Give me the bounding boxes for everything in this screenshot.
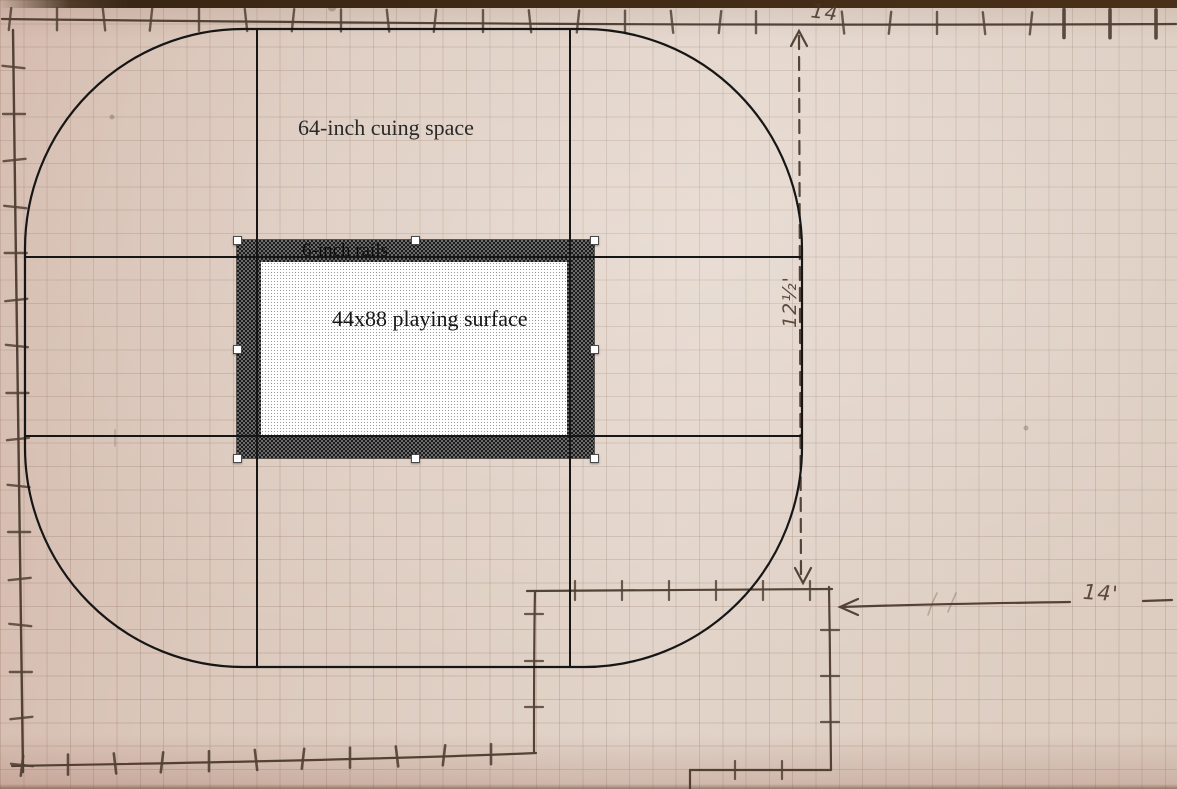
cuing-space-label: 64-inch cuing space (298, 115, 474, 141)
dimension-12half-ft: 12½' (779, 265, 801, 339)
selection-handle[interactable] (411, 454, 420, 463)
playing-surface-label: 44x88 playing surface (332, 306, 528, 332)
digital-line-layer (0, 0, 1177, 789)
selection-handle[interactable] (233, 345, 242, 354)
dimension-14-top: 14 (810, 0, 840, 26)
selection-handle[interactable] (233, 236, 242, 245)
selection-handle[interactable] (590, 236, 599, 245)
selection-handle[interactable] (411, 236, 420, 245)
selection-handle[interactable] (590, 454, 599, 463)
dimension-14-ft: 14' (1082, 580, 1119, 606)
graph-paper-sketch: 64-inch cuing space 6-inch rails 44x88 p… (0, 0, 1177, 789)
selection-handle[interactable] (233, 454, 242, 463)
selection-handle[interactable] (590, 345, 599, 354)
rails-label: 6-inch rails (302, 240, 388, 262)
